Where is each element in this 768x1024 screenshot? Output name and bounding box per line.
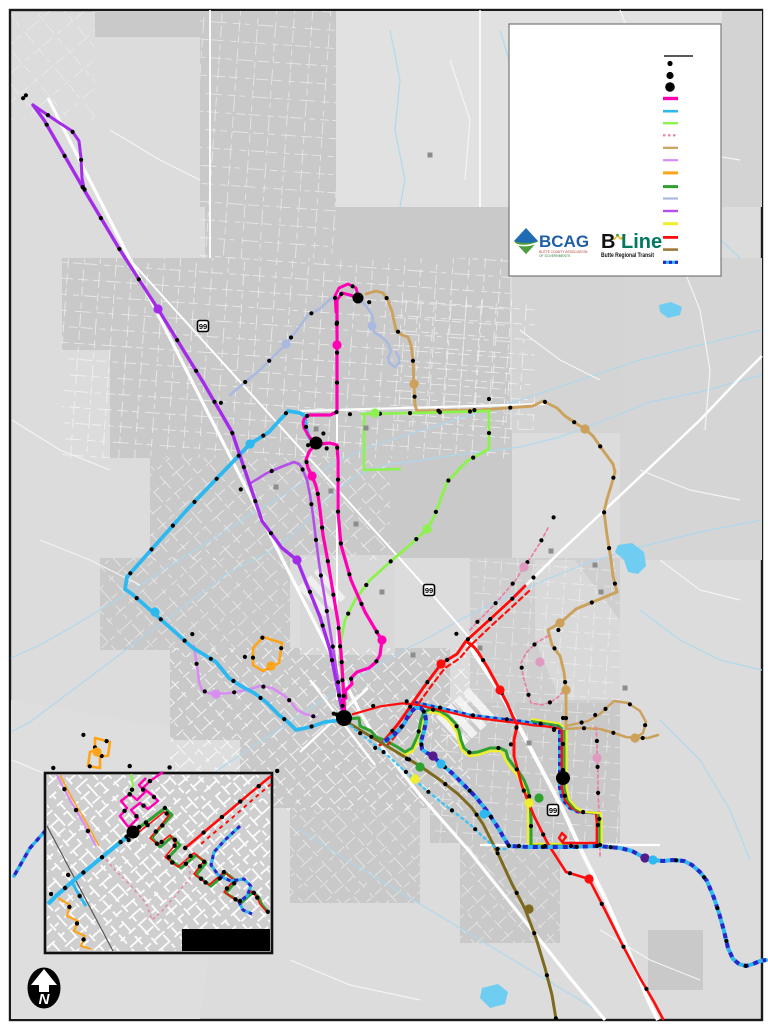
svg-text:B: B [601, 231, 615, 253]
svg-text:N: N [39, 991, 51, 1008]
svg-text:99: 99 [425, 586, 433, 595]
svg-text:BUTTE COUNTY ASSOCIATION: BUTTE COUNTY ASSOCIATION [539, 250, 588, 254]
svg-text:BCAG: BCAG [539, 232, 589, 251]
svg-text:99: 99 [549, 806, 557, 815]
svg-text:Line: Line [621, 231, 662, 253]
svg-text:OF GOVERNMENTS: OF GOVERNMENTS [539, 254, 571, 258]
svg-text:Butte Regional Transit: Butte Regional Transit [601, 252, 655, 259]
svg-text:99: 99 [199, 322, 207, 331]
